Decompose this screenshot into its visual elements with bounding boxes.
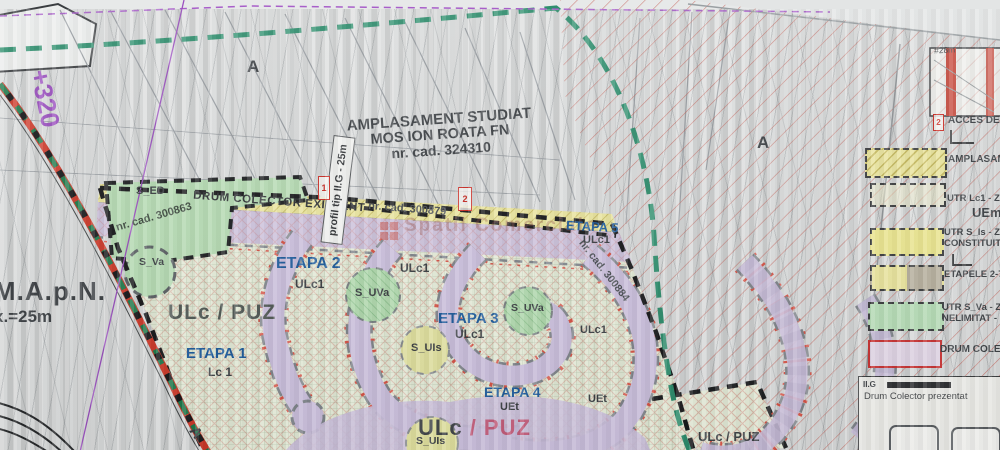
etapa3-label: ETAPA 3 xyxy=(438,311,499,327)
plan-sheet: A A A +320 M.A.p.N. x.=25m AMPLASAMENT S… xyxy=(0,9,1000,450)
legend-nelimitat-label: NELIMITAT - R xyxy=(942,314,1000,324)
s-ed-label: S_ED xyxy=(136,186,165,198)
legend-swatch-s-is xyxy=(870,228,944,256)
legend-utr-s-va-label: UTR S_Va - Z xyxy=(942,303,1000,313)
screen-photo: A A A +320 M.A.p.N. x.=25m AMPLASAMENT S… xyxy=(0,0,1000,450)
etapa2-label: ETAPA 2 xyxy=(276,256,341,273)
ulc1-extra-b-label: ULc1 xyxy=(580,325,607,337)
bracket-icon-2 xyxy=(952,254,972,266)
legend-access-label: ACCES DE xyxy=(948,116,1000,127)
s-uva-1-label: S_UVa xyxy=(355,288,389,300)
zone-a-label-2: A xyxy=(757,134,769,152)
zone-a-label-1: A xyxy=(247,58,259,76)
watermark-icon xyxy=(380,222,398,240)
etapa4-label: ETAPA 4 xyxy=(484,385,541,400)
s-uva-2-label: S_UVa xyxy=(511,303,544,314)
ulc-puz-east-label: ULc / PUZ xyxy=(698,430,759,444)
etapa2-zone-label: ULc1 xyxy=(295,278,324,291)
vehicle-icon-2 xyxy=(951,427,1000,450)
legend-swatch-etapele xyxy=(870,265,944,291)
contour-lines xyxy=(0,402,75,450)
ulc-puz-bottom-pink: / PUZ xyxy=(470,415,531,440)
etapa3-zone-label: ULc1 xyxy=(455,328,484,341)
legend-access-marker: 2 xyxy=(933,114,944,131)
s-uis-2-label: S_UIs xyxy=(416,436,445,447)
uet-extra-label: UEt xyxy=(588,394,607,406)
etapa4-zone-label: UEt xyxy=(500,402,519,414)
section-marker-1: 1 xyxy=(318,176,330,200)
profile-box-title: Drum Colector prezentat xyxy=(864,392,967,402)
s-va-label: S_Va xyxy=(139,257,164,268)
legend-swatch-amplasament xyxy=(865,148,947,178)
legend-constituit-label: CONSTITUIT xyxy=(944,239,1000,249)
profile-box-tag: II.G xyxy=(863,381,876,389)
legend-utr-s-is-label: UTR S_Is - Z xyxy=(944,228,1000,238)
legend-drum-colector-label: DRUM COLEC xyxy=(940,345,1000,356)
ulc-puz-main-label: ULc / PUZ xyxy=(168,302,276,324)
etapa5-zone-label: ULc1 xyxy=(583,235,610,247)
zone-s-va xyxy=(125,247,175,297)
etapa5-label: ETAPA 5 xyxy=(566,219,619,235)
mapn-width-label: x.=25m xyxy=(0,308,52,326)
etapa1-label: ETAPA 1 xyxy=(186,346,247,362)
ulc1-extra-a-label: ULc1 xyxy=(400,262,429,275)
legend-utr-lc1-label: UTR Lc1 - Z xyxy=(947,194,1000,204)
legend-amplasament-label: AMPLASAM xyxy=(948,155,1000,166)
scribble-bar xyxy=(887,382,951,388)
profile-box: II.G Drum Colector prezentat xyxy=(858,376,1000,450)
section-marker-2: 2 xyxy=(458,187,472,211)
legend-swatch-secondary xyxy=(870,183,946,207)
legend-etapele-label: ETAPELE 2-7 xyxy=(944,270,1000,280)
legend-swatch-drum xyxy=(868,340,942,368)
etapa1-zone-label: Lc 1 xyxy=(208,366,232,379)
legend-swatch-s-va xyxy=(868,302,944,331)
mini-width-label: #28m xyxy=(934,45,956,55)
mapn-label: M.A.p.N. xyxy=(0,278,106,305)
mini-plan xyxy=(930,48,1000,116)
legend-uem-label: UEm xyxy=(972,206,1000,220)
s-uis-1-label: S_UIs xyxy=(411,343,442,355)
vehicle-icon-1 xyxy=(889,425,939,450)
bracket-icon-1 xyxy=(950,130,974,144)
